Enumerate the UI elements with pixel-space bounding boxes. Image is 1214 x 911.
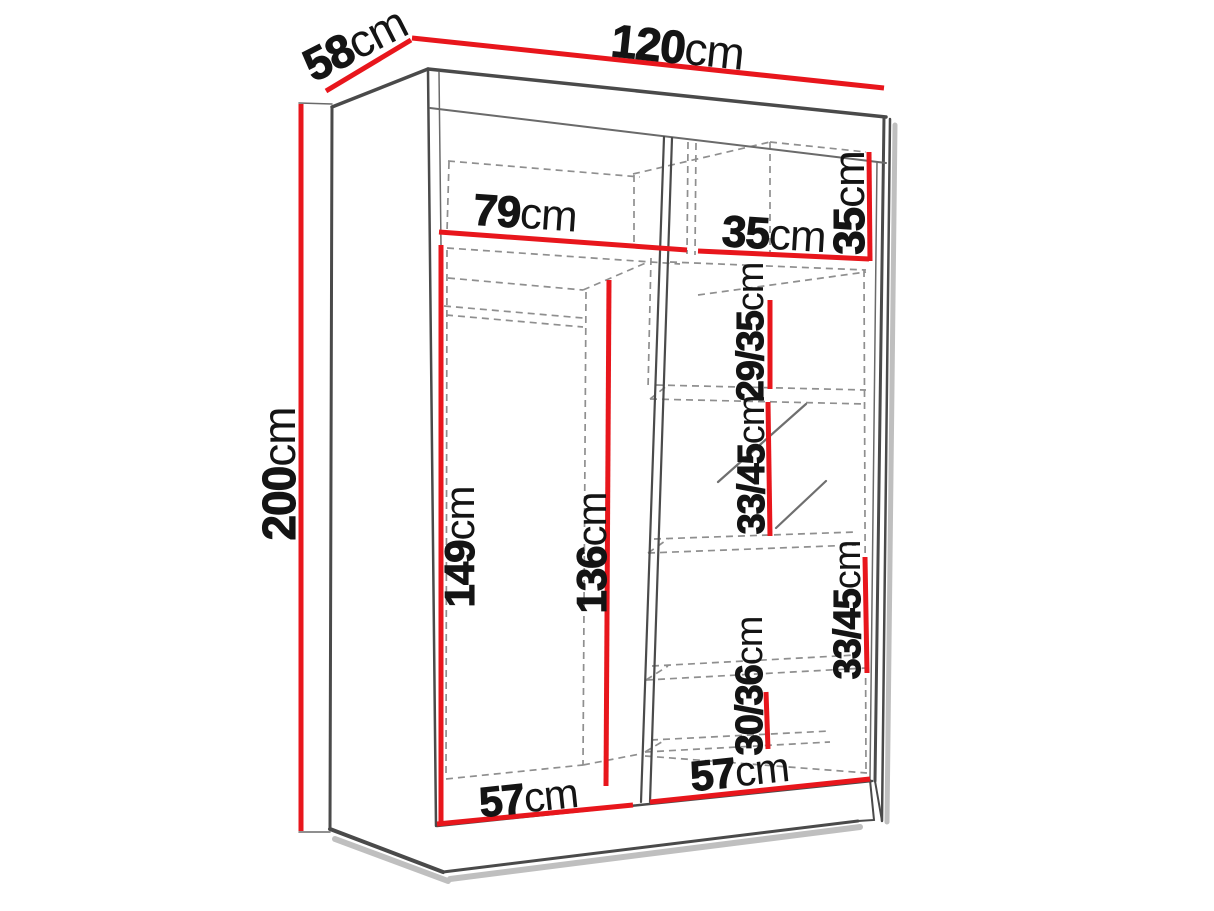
left-section-height-label: 149cm — [436, 486, 483, 607]
left-inner-height-label: 136cm — [568, 492, 615, 613]
shelf-gap3-label: 33/45cm — [827, 541, 869, 680]
top-shelf-right-width-label: 35cm — [721, 207, 827, 262]
top-shelf-right-height-label: 35cm — [825, 151, 874, 255]
cabinet-outline — [299, 69, 890, 872]
left-bottom-width-label: 57cm — [477, 769, 580, 826]
height-label: 200cm — [253, 407, 305, 540]
depth-label: 58cm — [295, 0, 415, 92]
width-label: 120cm — [609, 14, 747, 80]
shelf-gap4-label: 30/36cm — [729, 617, 771, 756]
dimension-lines — [301, 38, 884, 831]
top-shelf-left-width-label: 79cm — [472, 185, 579, 241]
wardrobe-dimension-diagram: 58cm 120cm 200cm 79cm 35cm 35cm 29/35cm … — [0, 0, 1214, 911]
shelf-gap2-label: 33/45cm — [731, 396, 773, 535]
diagram-canvas: 58cm 120cm 200cm 79cm 35cm 35cm 29/35cm … — [0, 0, 1214, 911]
shelf-gap1-label: 29/35cm — [730, 263, 772, 402]
